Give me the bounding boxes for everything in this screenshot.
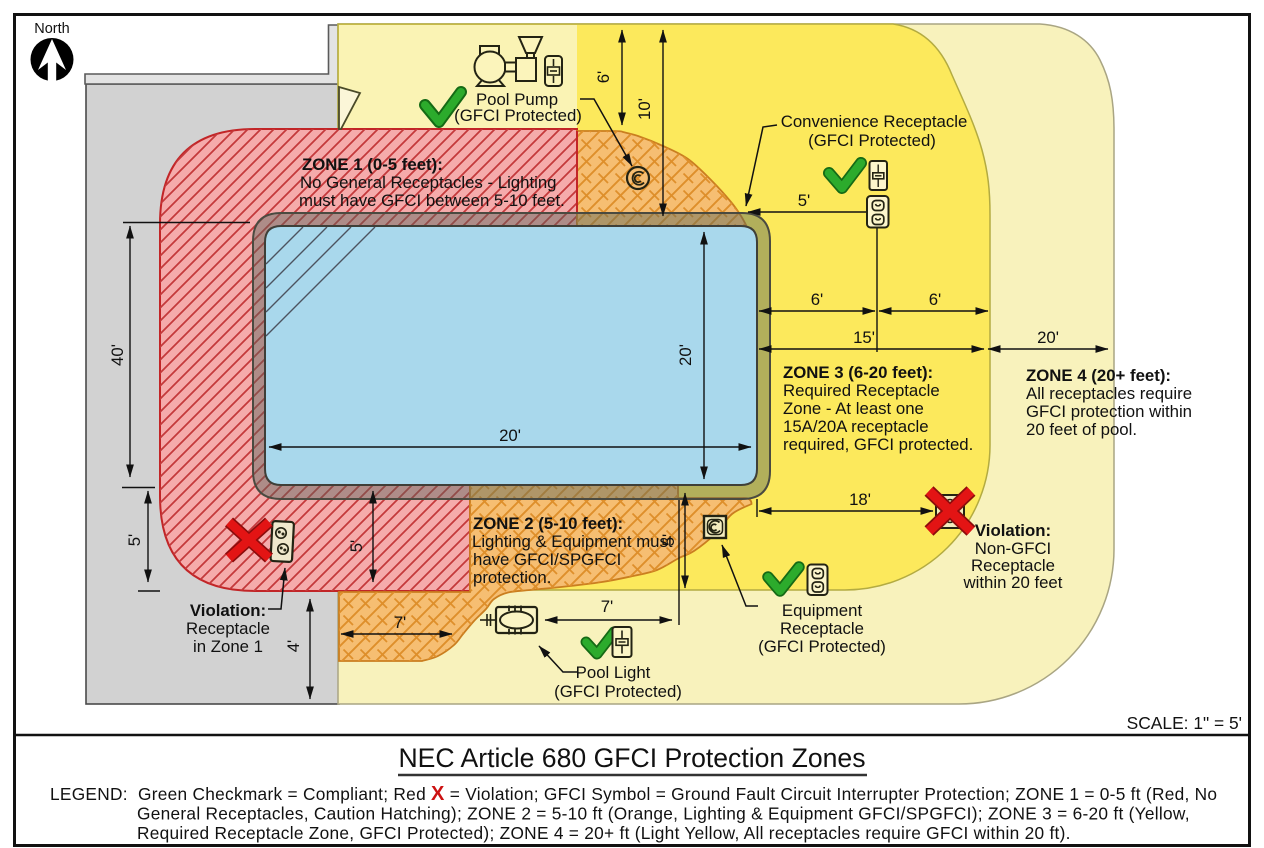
svg-text:Required Receptacle Zone, GFCI: Required Receptacle Zone, GFCI Protected… (137, 823, 1071, 843)
svg-text:20': 20' (676, 344, 695, 366)
svg-text:40': 40' (108, 344, 127, 366)
svg-text:(GFCI Protected): (GFCI Protected) (758, 637, 886, 656)
svg-text:Required Receptacle: Required Receptacle (783, 381, 940, 400)
svg-text:7': 7' (601, 597, 614, 616)
svg-text:Lighting & Equipment must: Lighting & Equipment must (472, 532, 673, 551)
svg-text:Receptacle: Receptacle (186, 619, 270, 638)
svg-text:7': 7' (394, 613, 407, 632)
svg-text:5': 5' (798, 191, 811, 210)
svg-text:(GFCI Protected): (GFCI Protected) (554, 682, 682, 701)
svg-text:5': 5' (125, 534, 144, 547)
svg-text:All receptacles require: All receptacles require (1026, 384, 1192, 403)
svg-text:ZONE 4 (20+ feet):: ZONE 4 (20+ feet): (1026, 366, 1171, 385)
svg-text:General Receptacles, Caution H: General Receptacles, Caution Hatching); … (137, 804, 1190, 824)
svg-text:LEGEND: Green Checkmark = Com: LEGEND: Green Checkmark = Compliant; Red… (50, 783, 1217, 805)
svg-text:15A/20A receptacle: 15A/20A receptacle (783, 417, 929, 436)
svg-text:ZONE 2 (5-10 feet):: ZONE 2 (5-10 feet): (473, 514, 623, 533)
svg-text:No General Receptacles - Light: No General Receptacles - Lighting (300, 173, 557, 192)
svg-text:Equipment: Equipment (782, 601, 863, 620)
svg-text:(GFCI Protected): (GFCI Protected) (808, 131, 936, 150)
svg-text:Zone - At least one: Zone - At least one (783, 399, 924, 418)
svg-text:5': 5' (347, 540, 366, 553)
svg-text:must have GFCI between 5-10 fe: must have GFCI between 5-10 feet. (299, 191, 565, 210)
svg-text:Violation:: Violation: (190, 601, 266, 620)
svg-text:within 20 feet: within 20 feet (963, 573, 1063, 592)
svg-text:20 feet of pool.: 20 feet of pool. (1026, 420, 1137, 439)
svg-text:6': 6' (811, 290, 824, 309)
svg-text:Pool Light: Pool Light (576, 663, 651, 682)
svg-text:required, GFCI protected.: required, GFCI protected. (783, 435, 973, 454)
svg-text:20': 20' (499, 426, 521, 445)
svg-text:6': 6' (594, 71, 613, 84)
svg-text:protection.: protection. (473, 568, 551, 587)
svg-text:20': 20' (1037, 328, 1059, 347)
svg-text:North: North (34, 21, 69, 37)
svg-text:Convenience Receptacle: Convenience Receptacle (781, 112, 968, 131)
svg-text:18': 18' (849, 490, 871, 509)
svg-text:NEC Article 680 GFCI Protectio: NEC Article 680 GFCI Protection Zones (398, 743, 865, 773)
svg-text:ZONE 1 (0-5 feet):: ZONE 1 (0-5 feet): (302, 155, 443, 174)
svg-text:Receptacle: Receptacle (780, 619, 864, 638)
svg-text:GFCI protection within: GFCI protection within (1026, 402, 1192, 421)
svg-text:6': 6' (929, 290, 942, 309)
svg-text:(GFCI Protected): (GFCI Protected) (454, 106, 582, 125)
svg-text:have GFCI/SPGFCI: have GFCI/SPGFCI (473, 550, 621, 569)
svg-text:Violation:: Violation: (975, 521, 1051, 540)
svg-text:in Zone 1: in Zone 1 (193, 637, 263, 656)
svg-text:10': 10' (635, 98, 654, 120)
svg-text:ZONE 3 (6-20 feet):: ZONE 3 (6-20 feet): (783, 363, 933, 382)
svg-text:SCALE: 1" = 5': SCALE: 1" = 5' (1127, 713, 1242, 733)
svg-text:15': 15' (853, 328, 875, 347)
svg-text:4': 4' (284, 640, 303, 653)
